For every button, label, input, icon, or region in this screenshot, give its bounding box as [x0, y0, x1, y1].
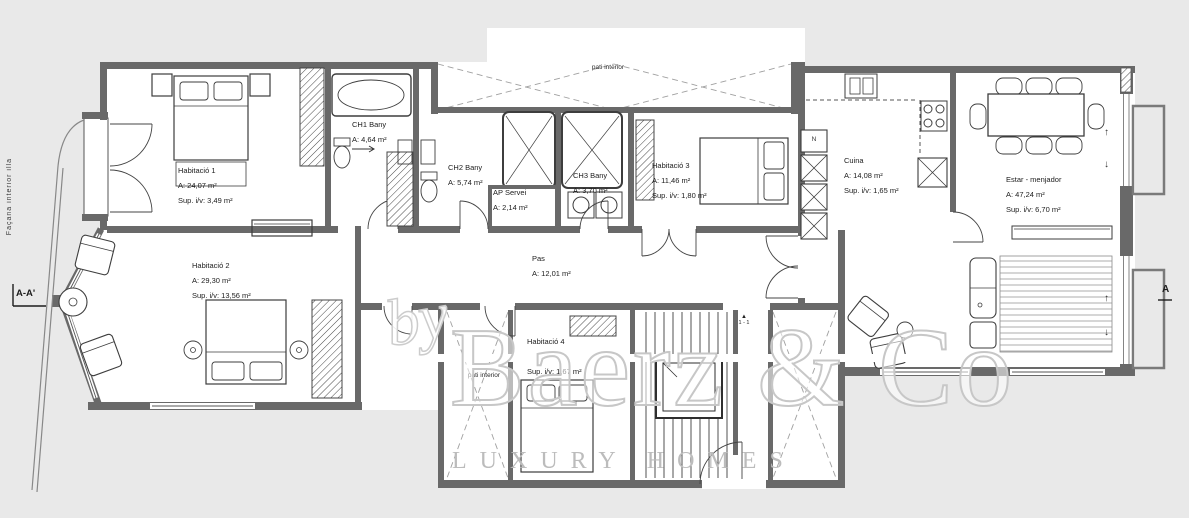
room-area: A: 11,46 m²	[652, 173, 707, 188]
room-label-ch1-bany: CH1 Bany A: 4,64 m²	[352, 117, 387, 147]
room-label-habitacio-2: Habitació 2 A: 29,30 m² Sup. i/v: 13,56 …	[192, 258, 251, 303]
room-area: A: 4,64 m²	[352, 132, 387, 147]
arrow-down-icon: ↓	[1104, 160, 1109, 170]
room-sup: Sup. i/v: 6,70 m²	[1006, 202, 1061, 217]
section-aa-label: A-A'	[16, 288, 35, 299]
room-label-ap-servei: AP Servei A: 2,14 m²	[493, 185, 528, 215]
room-name: Habitació 3	[652, 158, 707, 173]
room-sup: Sup. i/v: 1,80 m²	[652, 188, 707, 203]
room-area: A: 29,30 m²	[192, 273, 251, 288]
shaft-n-label: N	[801, 136, 827, 143]
pati-line1: pati	[592, 64, 602, 71]
room-sup: Sup. i/v: 1,65 m²	[844, 183, 899, 198]
facade-label: Façana interior illa	[6, 158, 13, 235]
watermark-by-text: by	[380, 277, 455, 363]
room-name: Cuina	[844, 153, 899, 168]
room-name: AP Servei	[493, 185, 528, 200]
rug-icon	[1000, 256, 1112, 352]
room-area: A: 5,74 m²	[448, 175, 483, 190]
room-area: A: 12,01 m²	[532, 266, 571, 281]
pati-line2: interior	[604, 64, 624, 71]
watermark-brand-text: Baerz & Co	[450, 312, 1015, 424]
room-name: CH2 Bany	[448, 160, 483, 175]
entrance-gap	[702, 479, 766, 489]
room-sup: Sup. i/v: 13,56 m²	[192, 288, 251, 303]
room-area: A: 24,07 m²	[178, 178, 233, 193]
arrow-up-icon: ↑	[1104, 128, 1109, 138]
arrow-up-icon: ↑	[1104, 294, 1109, 304]
room-name: Habitació 1	[178, 163, 233, 178]
room-label-estar-menjador: Estar - menjador A: 47,24 m² Sup. i/v: 6…	[1006, 172, 1061, 217]
room-area: A: 47,24 m²	[1006, 187, 1061, 202]
room-area: A: 3,70 m²	[573, 183, 608, 198]
room-name: Pas	[532, 251, 571, 266]
room-sup: Sup. i/v: 3,49 m²	[178, 193, 233, 208]
room-area: A: 14,08 m²	[844, 168, 899, 183]
room-label-cuina: Cuina A: 14,08 m² Sup. i/v: 1,65 m²	[844, 153, 899, 198]
balconies	[1133, 106, 1164, 368]
watermark-luxury-homes-text: LUXURY HOMES	[452, 448, 796, 475]
room-name: CH1 Bany	[352, 117, 387, 132]
room-label-pas: Pas A: 12,01 m²	[532, 251, 571, 281]
room-area: A: 2,14 m²	[493, 200, 528, 215]
arrow-down-icon: ↓	[1104, 328, 1109, 338]
pati-interior-top-label: pati interior	[585, 64, 631, 73]
floor-plan-drawing	[0, 0, 1189, 518]
floorplan-page: Habitació 1 A: 24,07 m² Sup. i/v: 3,49 m…	[0, 0, 1189, 518]
room-name: CH3 Bany	[573, 168, 608, 183]
room-label-habitacio-3: Habitació 3 A: 11,46 m² Sup. i/v: 1,80 m…	[652, 158, 707, 203]
room-label-ch2-bany: CH2 Bany A: 5,74 m²	[448, 160, 483, 190]
room-name: Estar - menjador	[1006, 172, 1061, 187]
room-label-habitacio-1: Habitació 1 A: 24,07 m² Sup. i/v: 3,49 m…	[178, 163, 233, 208]
room-label-ch3-bany: CH3 Bany A: 3,70 m²	[573, 168, 608, 198]
section-a-label: A	[1162, 284, 1169, 295]
room-name: Habitació 2	[192, 258, 251, 273]
